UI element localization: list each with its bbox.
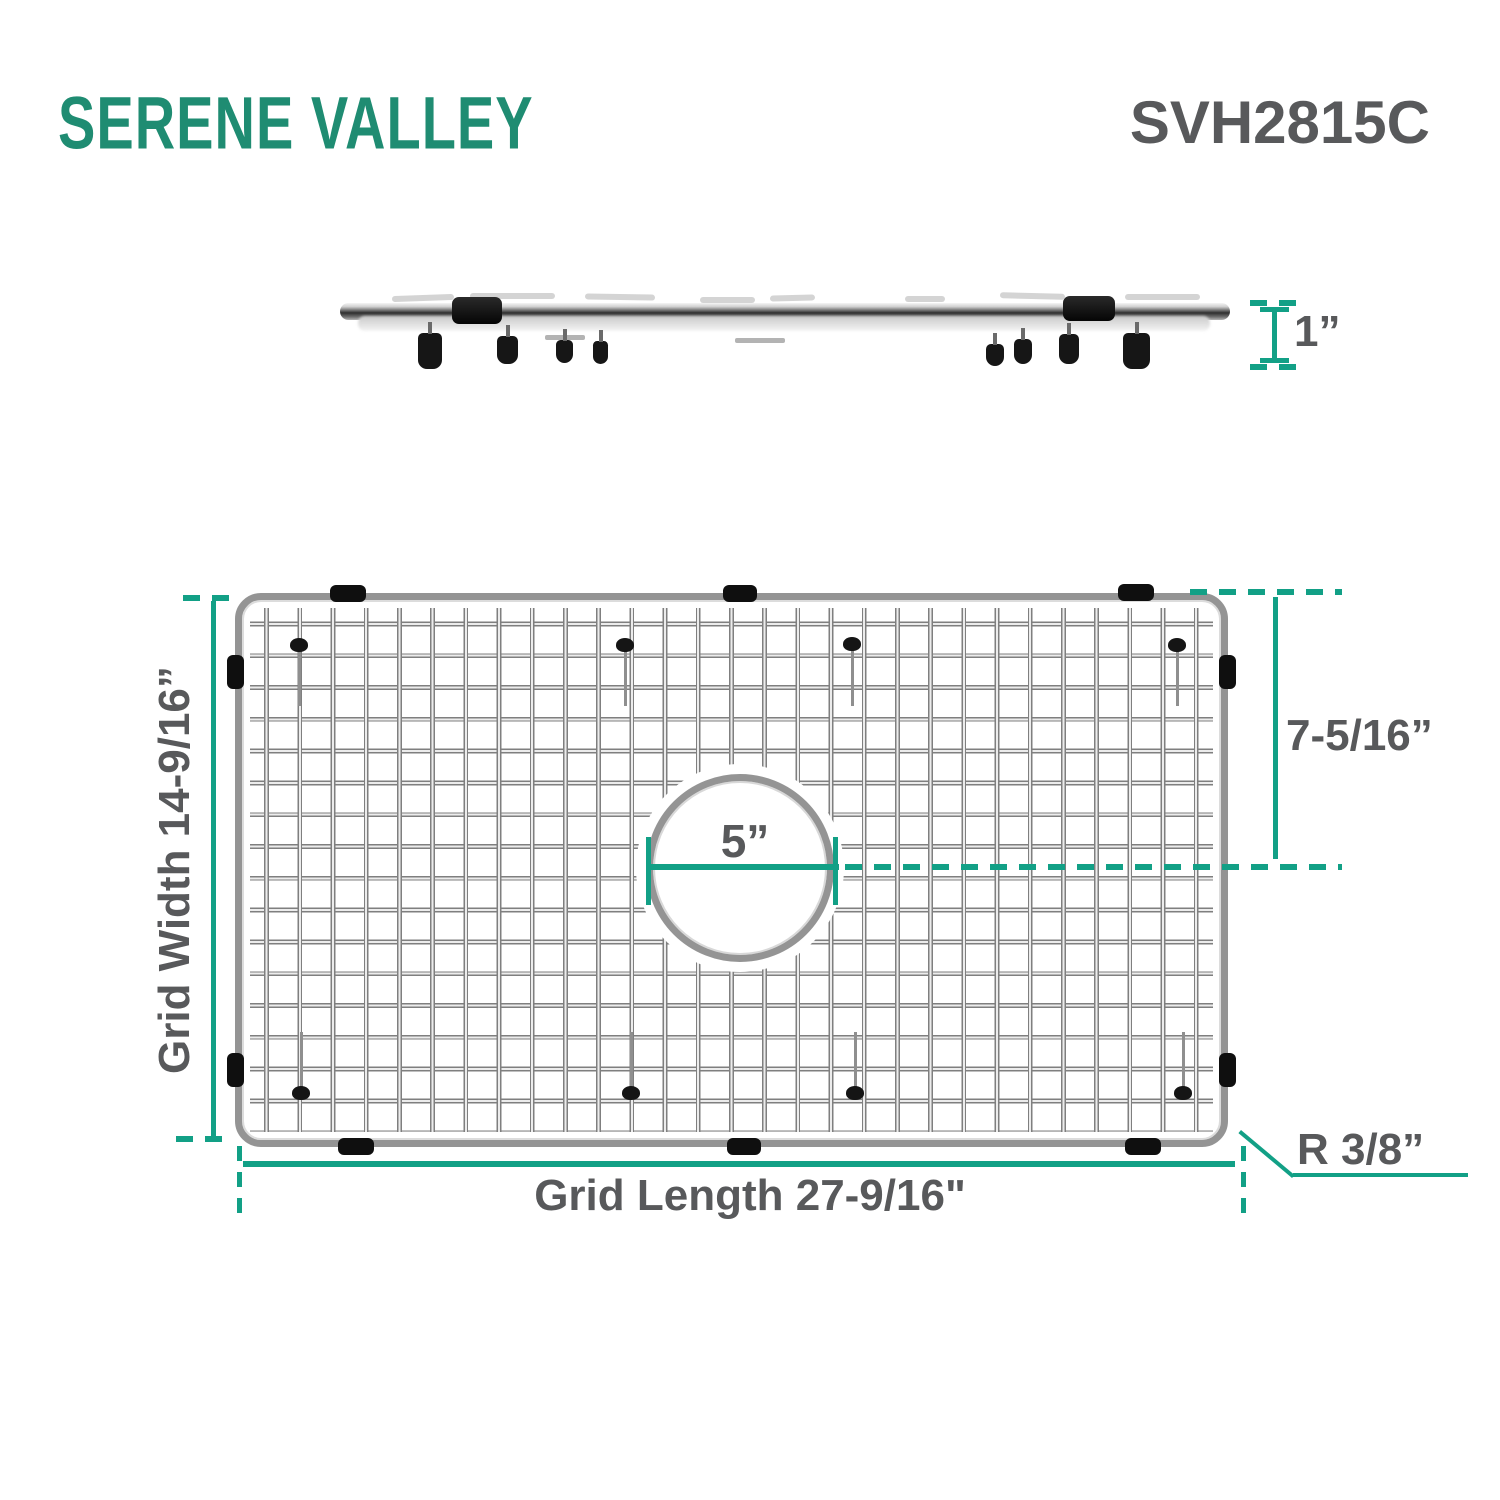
hole-centerline-dash [845, 864, 1342, 870]
grid-foot [616, 638, 634, 652]
model-number: SVH2815C [1100, 88, 1430, 157]
side-view-wire-shadow [735, 338, 785, 343]
side-view-bumper-clip [452, 297, 502, 324]
edge-bumper-clip [227, 1053, 244, 1087]
height-dimension-bottom-cap [1260, 358, 1289, 363]
hole-diameter-label: 5” [690, 818, 800, 864]
length-dimension-left-tick [237, 1146, 242, 1216]
product-dimension-diagram: SERENE VALLEY SVH2815C 1” [0, 0, 1500, 1500]
hole-dimension-left-tick [646, 837, 651, 905]
hole-dimension-right-tick [833, 837, 838, 905]
grid-foot-wire [630, 1032, 633, 1090]
height-dimension-line [1272, 309, 1277, 362]
grid-foot-wire [1182, 1032, 1185, 1090]
side-view-foot [986, 344, 1004, 366]
width-dimension-line [211, 601, 216, 1139]
side-view-bumper-clip [1063, 296, 1115, 321]
height-dimension-label: 1” [1294, 310, 1340, 354]
offset-dimension-label: 7-5/16” [1286, 714, 1433, 758]
side-view-foot [1123, 333, 1150, 369]
edge-bumper-clip [330, 585, 366, 602]
height-dimension-bottom-dash [1250, 364, 1308, 370]
edge-bumper-clip [1118, 584, 1154, 601]
height-dimension-top-dash [1250, 300, 1308, 306]
side-view-wire-highlight [1000, 292, 1065, 300]
grid-foot-wire [298, 648, 301, 706]
edge-bumper-clip [227, 655, 244, 689]
width-dimension-label: Grid Width 14-9/16” [146, 600, 204, 1140]
radius-leader-diagonal [1238, 1130, 1294, 1178]
side-view-foot [418, 333, 442, 369]
edge-bumper-clip [338, 1138, 374, 1155]
edge-bumper-clip [1219, 655, 1236, 689]
grid-foot-wire [1176, 648, 1179, 706]
side-view-wire-highlight [905, 296, 945, 302]
side-view-foot [593, 341, 608, 364]
grid-foot [290, 638, 308, 652]
length-dimension-label: Grid Length 27-9/16" [380, 1174, 1120, 1218]
side-view-wire-highlight [392, 294, 454, 302]
grid-foot [1168, 638, 1186, 652]
side-view-wire-highlight [770, 294, 815, 301]
offset-dimension-top-dash [1190, 589, 1342, 595]
brand-logo: SERENE VALLEY [58, 80, 534, 166]
offset-dimension-line [1273, 597, 1278, 859]
corner-radius-label: R 3/8” [1297, 1128, 1424, 1172]
grid-foot [622, 1086, 640, 1100]
side-view-foot [556, 340, 573, 363]
grid-foot [292, 1086, 310, 1100]
grid-foot-wire [300, 1032, 303, 1090]
grid-foot-wire [624, 648, 627, 706]
edge-bumper-clip [1219, 1053, 1236, 1087]
grid-foot [846, 1086, 864, 1100]
side-view-foot [497, 336, 518, 364]
edge-bumper-clip [1125, 1138, 1161, 1155]
edge-bumper-clip [723, 585, 757, 602]
grid-foot [1174, 1086, 1192, 1100]
side-view-wire-highlight [585, 293, 655, 300]
length-dimension-right-tick [1241, 1146, 1246, 1216]
grid-foot-wire [851, 648, 854, 706]
side-view-foot [1014, 339, 1032, 364]
grid-foot-wire [854, 1032, 857, 1090]
side-view-wire-highlight [1125, 294, 1200, 300]
side-view-foot [1059, 334, 1079, 364]
edge-bumper-clip [727, 1138, 761, 1155]
length-dimension-line [243, 1161, 1235, 1167]
grid-foot [843, 637, 861, 651]
